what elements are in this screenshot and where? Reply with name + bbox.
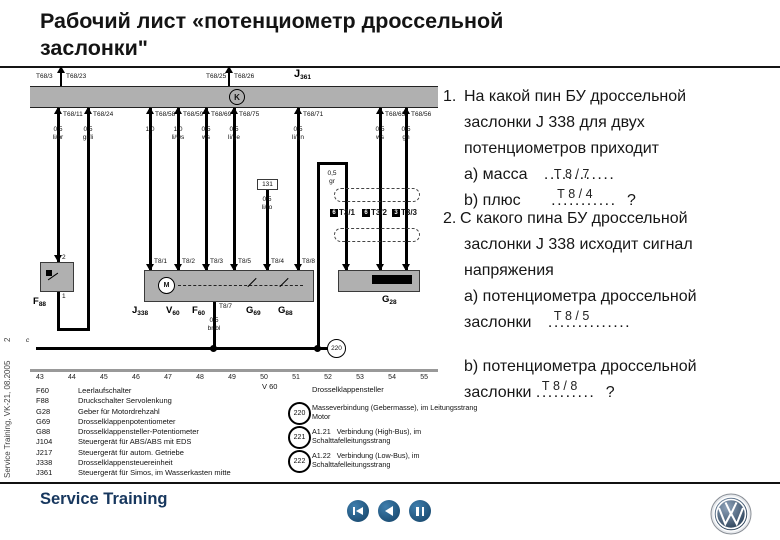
wire-color-label: 1,0li/ws [163, 126, 193, 141]
legend-connection-221: 221 [288, 426, 311, 449]
pin-label: T68/75 [239, 111, 259, 118]
footer-brand: Service Training [40, 490, 167, 509]
arrow-up-icon [376, 107, 384, 114]
question-2a: а) потенциометра дроссельной [443, 284, 778, 310]
pin-label: T68/56 [411, 111, 431, 118]
track-number: 49 [228, 374, 236, 381]
legend-row: G69Drosselklappenpotentiometer [36, 417, 231, 427]
page-title: Рабочий лист «потенциометр дроссельной з… [40, 8, 740, 62]
sensor-element [372, 275, 412, 284]
track-number: 50 [260, 374, 268, 381]
diagram-frame-bottom [30, 369, 438, 372]
question-2-line: напряжения [443, 258, 778, 284]
legend-row: J104Steuergerät für ABS/ABS mit EDS [36, 437, 231, 447]
arrow-up-icon [202, 107, 210, 114]
component-label-f88: F88 [33, 296, 46, 308]
component-label-g88: G88 [278, 305, 293, 317]
arrow-up-icon [146, 107, 154, 114]
arrow-up-icon [402, 107, 410, 114]
pin-label: T8/2 [182, 258, 195, 265]
question-1: 1.На какой пин БУ дроссельной заслонки J… [443, 84, 778, 214]
connector-label-t3-2: 6T3/2 [362, 208, 387, 217]
wire [317, 162, 348, 165]
question-mark: ? [606, 384, 615, 401]
junction-dot [314, 345, 321, 352]
track-number: 53 [356, 374, 364, 381]
legend-v60-code: V 60 [262, 382, 277, 391]
question-1-line: 1.На какой пин БУ дроссельной [443, 84, 778, 110]
question-1-line: заслонки J 338 для двух [443, 110, 778, 136]
motor-symbol: M [158, 277, 175, 294]
arrow-up-icon [57, 66, 65, 73]
wire [87, 108, 90, 331]
track-number-row: 43 44 45 46 47 48 49 50 51 52 53 54 55 [36, 374, 428, 381]
answer-blank: Т 8 / 5 .............. [548, 310, 631, 336]
wire-color-label: 1,0li [135, 126, 165, 141]
pin-label: T68/11 [63, 111, 83, 118]
pin-label: T68/71 [303, 111, 323, 118]
pin-number-box: 6 [330, 209, 338, 217]
track-number: 45 [100, 374, 108, 381]
legend-connection-222-desc: A1.22 Verbindung (Low-Bus), im Schalttaf… [312, 452, 480, 470]
arrow-up-icon [174, 107, 182, 114]
track-number: 43 [36, 374, 44, 381]
handwritten-answer: Т 8 / 4 [557, 181, 592, 207]
legend-connection-220: 220 [288, 402, 311, 425]
question-2b-blank: заслонки Т 8 / 8 .......... ? [443, 380, 778, 406]
wire-color-label: 0,5li/ro [252, 196, 282, 211]
pin-number-box: 3 [392, 209, 400, 217]
track-number: 55 [420, 374, 428, 381]
skip-back-icon [353, 507, 363, 515]
wire-color-label: 0,5ws [191, 126, 221, 141]
connector-t3-lower [334, 228, 420, 242]
wire-color-label: 0,5gr/li [73, 126, 103, 141]
ecu-top-pin-label: T68/3 [36, 73, 53, 80]
ecu-top-pin-label: T68/23 [66, 73, 86, 80]
legend-row: J361Steuergerät für Simos, im Wasserkast… [36, 468, 231, 478]
handwritten-answer: Т 8 / 5 [554, 303, 589, 329]
answer-blank: Т 8 / 8 .......... [536, 380, 595, 406]
component-label-g69: G69 [246, 305, 261, 317]
component-label-g28: G28 [382, 294, 397, 306]
wire-color-label: 0,5gr [320, 170, 344, 185]
wire-color-label: 0,5li/gn [283, 126, 313, 141]
wire-color-label: 0,5li/br [43, 126, 73, 141]
component-label-v60: V60 [166, 305, 180, 317]
page-title-line2: заслонки" [40, 35, 740, 62]
ecu-top-pin-label: T68/26 [234, 73, 254, 80]
legend-connection-221-desc: A1.21 Verbindung (High-Bus), im Schaltta… [312, 428, 480, 446]
slide: Рабочий лист «потенциометр дроссельной з… [0, 0, 780, 540]
nav-skip-back-button[interactable] [347, 500, 369, 522]
legend-row: F88Druckschalter Servolenkung [36, 396, 231, 406]
question-1a: а) масса Т 8 / 7 ............ [443, 162, 778, 188]
connector-label-t3-1: 6T3/1 [330, 208, 355, 217]
connector-t3-upper [334, 188, 420, 202]
question-1-line: потенциометров приходит [443, 136, 778, 162]
handwritten-answer: Т 8 / 8 [542, 373, 577, 399]
wire [57, 328, 90, 331]
back-icon [385, 506, 393, 516]
pause-icon [416, 507, 424, 516]
title-divider [0, 66, 780, 68]
legend-row: G88Drosselklappensteller-Potentiometer [36, 427, 231, 437]
ground-connection-220: 220 [327, 339, 346, 358]
nav-back-button[interactable] [378, 500, 400, 522]
vw-logo-icon [710, 493, 752, 535]
question-2: 2.С какого пина БУ дроссельной заслонки … [443, 206, 778, 336]
track-number: 46 [132, 374, 140, 381]
component-label-f60: F60 [192, 305, 205, 317]
arrow-up-icon [84, 107, 92, 114]
wire-color-label: 0,5gn [391, 126, 421, 141]
track-number: 47 [164, 374, 172, 381]
wire [317, 162, 320, 350]
footer-divider [0, 482, 780, 484]
k-line-symbol: K [229, 89, 245, 105]
arrow-up-icon [54, 107, 62, 114]
ground-rail [36, 347, 328, 350]
legend-connection-220-desc: Masseverbindung (Gebermasse), im Leitung… [312, 404, 480, 422]
wire [57, 292, 60, 331]
legend-row: G28Geber für Motordrehzahl [36, 407, 231, 417]
track-number: 51 [292, 374, 300, 381]
pin-label: T68/59 [183, 111, 203, 118]
ecu-top-pin-label: T68/25 [206, 73, 226, 80]
pin-label: T8/4 [271, 258, 284, 265]
pin-label: T8/5 [238, 258, 251, 265]
pin-number-box: 6 [362, 209, 370, 217]
junction-dot [210, 345, 217, 352]
pin-label: 1 [62, 293, 66, 300]
question-2-line: 2.С какого пина БУ дроссельной [443, 206, 778, 232]
track-number: 48 [196, 374, 204, 381]
pin-label: T68/69 [211, 111, 231, 118]
question-2a-blank: заслонки Т 8 / 5 .............. [443, 310, 778, 336]
legend-row: J338Drosselklappensteuereinheit [36, 458, 231, 468]
track-number: 54 [388, 374, 396, 381]
pin-label: T68/24 [93, 111, 113, 118]
mechanical-link-dashed [178, 285, 303, 286]
pin-label: T8/3 [210, 258, 223, 265]
arrow-up-icon [230, 107, 238, 114]
course-id-vertical: Service Training, VK-21, 08.2005 [3, 350, 12, 478]
switch-icon [46, 270, 52, 276]
pin-label: T8/8 [302, 258, 315, 265]
page-title-line1: Рабочий лист «потенциометр дроссельной [40, 8, 740, 35]
legend-row: F60Leerlaufschalter [36, 386, 231, 396]
rail-continuation-marker: c [26, 337, 29, 344]
pin-label: 2 [62, 254, 66, 261]
legend-connection-222: 222 [288, 450, 311, 473]
nav-pause-button[interactable] [409, 500, 431, 522]
arrow-up-icon [225, 66, 233, 73]
arrow-up-icon [294, 107, 302, 114]
question-2-line: заслонки J 338 исходит сигнал [443, 232, 778, 258]
vw-logo [710, 493, 752, 535]
connection-box-131: 131 [257, 179, 278, 190]
question-2b-line: b) потенциометра дроссельной [443, 354, 778, 380]
connector-label-t3-3: 3T3/3 [392, 208, 417, 217]
arrow-down-icon [54, 255, 62, 262]
component-f88-box [40, 262, 74, 292]
track-number: 44 [68, 374, 76, 381]
page-number-vertical: 2 [3, 326, 12, 342]
pin-label: T8/1 [154, 258, 167, 265]
pin-label: T68/58 [155, 111, 175, 118]
component-label-j361: J361 [294, 68, 311, 81]
component-legend: F60Leerlaufschalter F88Druckschalter Ser… [36, 386, 231, 479]
legend-v60-desc: Drosselklappensteller [312, 385, 384, 394]
track-number: 52 [324, 374, 332, 381]
legend-row: J217Steuergerät für autom. Getriebe [36, 448, 231, 458]
pin-label: T8/7 [219, 303, 232, 310]
wire-color-label: 0,5br/bl [199, 317, 229, 332]
question-2b: b) потенциометра дроссельной заслонки Т … [443, 354, 778, 406]
wire-color-label: 0,5li/ge [219, 126, 249, 141]
component-label-j338: J338 [132, 305, 148, 317]
